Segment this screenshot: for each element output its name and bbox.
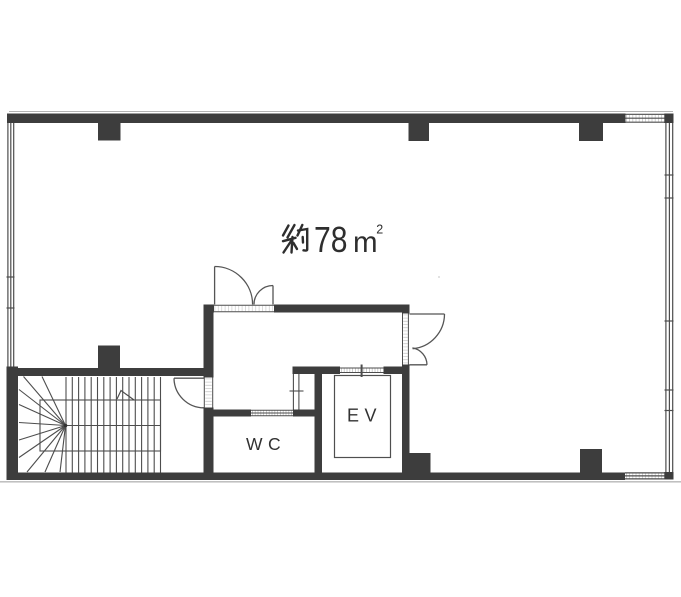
svg-text:78: 78 — [314, 219, 348, 260]
svg-text:EV: EV — [347, 406, 382, 426]
svg-text:WC: WC — [246, 434, 286, 454]
svg-text:m: m — [353, 226, 378, 259]
svg-text:2: 2 — [376, 223, 383, 237]
